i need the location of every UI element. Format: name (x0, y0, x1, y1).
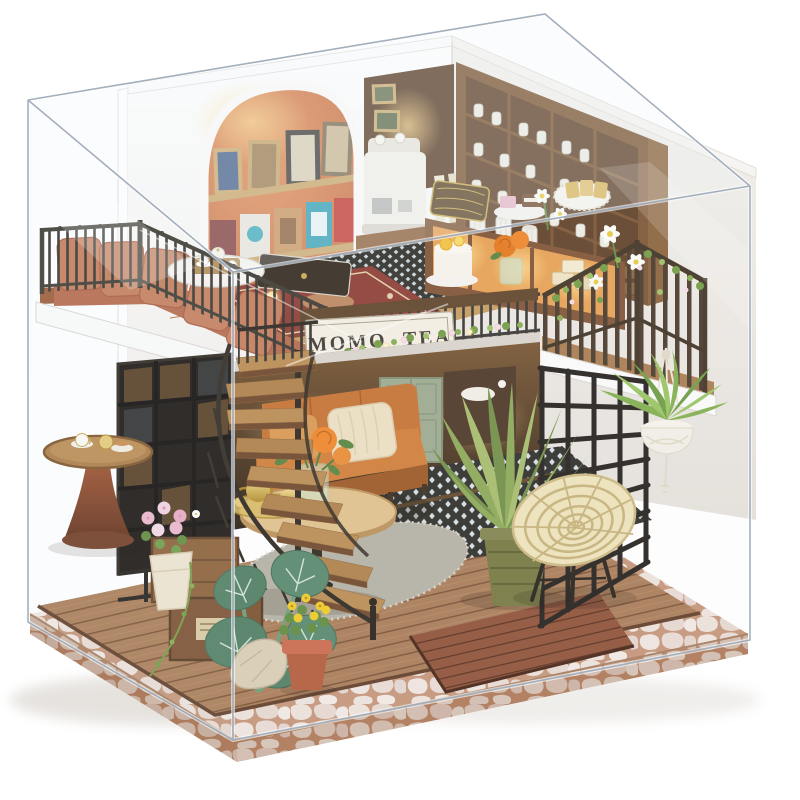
dollhouse-illustration: MOMO TEA (0, 0, 800, 800)
acrylic-display-case (28, 14, 750, 740)
product-photo: MOMO TEA (0, 0, 800, 800)
